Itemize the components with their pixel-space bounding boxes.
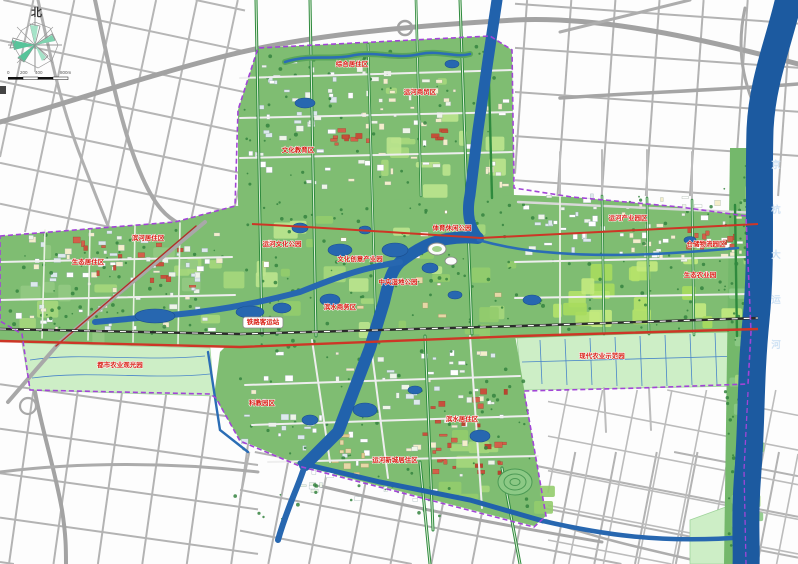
district-label: 科教园区 — [249, 398, 276, 407]
district-label: 滨水居住区 — [446, 414, 479, 423]
grand-canal-char: 京 — [771, 159, 781, 171]
district-label: 体育休闲公园 — [433, 223, 473, 232]
district-label: 文化教育区 — [281, 145, 315, 154]
arena — [445, 257, 457, 265]
district-label: 综合居住区 — [336, 59, 369, 68]
district-label: 仓储物流园区 — [686, 239, 727, 248]
district-label: 生态居住区 — [72, 257, 105, 266]
district-label: 都市农业观光园 — [96, 360, 143, 369]
scale-400: 400 — [35, 70, 43, 75]
district-label: 滨河居住区 — [132, 233, 165, 242]
scale-200: 200 — [20, 70, 28, 75]
district-label: 运河新城居住区 — [372, 455, 418, 464]
scale-800: 800m — [60, 70, 72, 75]
district-label: 运河商贸区 — [404, 87, 437, 96]
district-label: 运河文化公园 — [263, 239, 303, 248]
district-label: 现代农业示范园 — [579, 351, 625, 360]
district-label: 滨水商务区 — [324, 302, 357, 311]
district-label: 运河产业园区 — [609, 213, 649, 222]
master-plan-map: 综合居住区运河商贸区文化教育区滨河居住区生态居住区运河文化公园文化创意产业园中央… — [0, 0, 798, 564]
grand-canal-char: 大 — [771, 249, 781, 261]
district-label: 中央湿地公园 — [379, 277, 419, 286]
garden-maze-park — [498, 469, 532, 495]
grand-canal-char: 杭 — [771, 204, 781, 216]
legend-mark — [0, 86, 6, 94]
north-label: 北 — [31, 5, 42, 19]
grand-canal-char: 河 — [771, 339, 781, 351]
grand-canal-char: 运 — [771, 295, 781, 306]
district-label: 铁路客运站 — [246, 317, 280, 326]
district-label: 生态农业园 — [684, 270, 717, 279]
district-label: 文化创意产业园 — [336, 254, 383, 263]
map-canvas: 综合居住区运河商贸区文化教育区滨河居住区生态居住区运河文化公园文化创意产业园中央… — [0, 0, 798, 564]
